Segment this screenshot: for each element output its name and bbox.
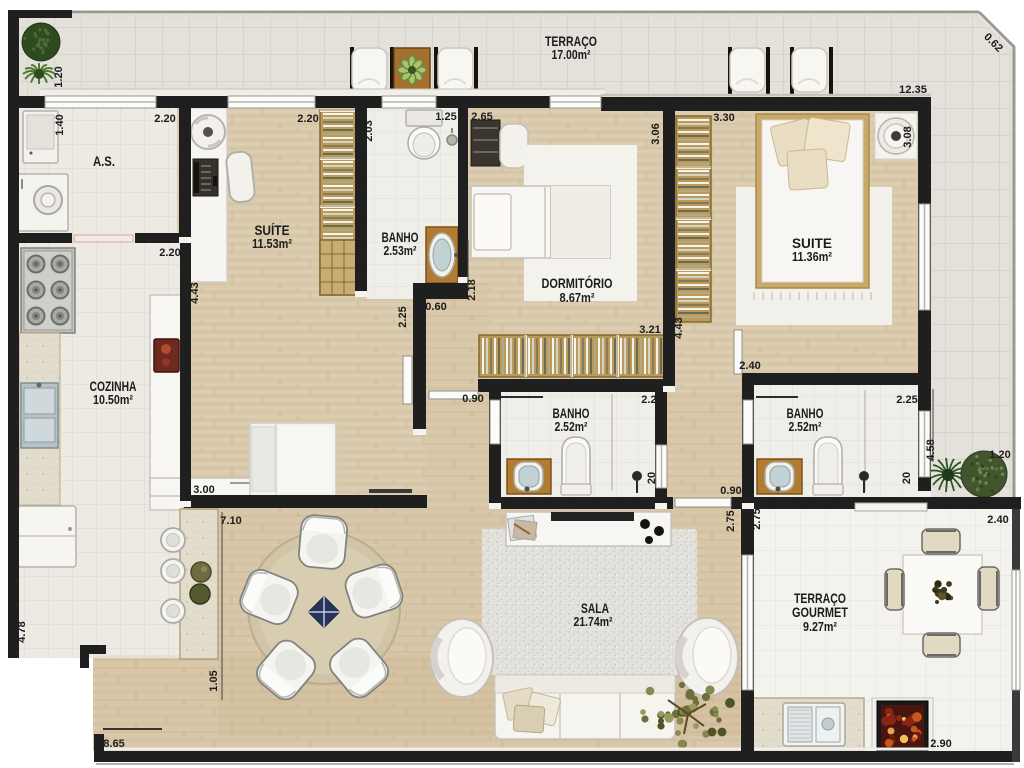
svg-text:12.35: 12.35 xyxy=(899,84,927,96)
svg-text:2.20: 2.20 xyxy=(159,247,180,259)
svg-text:1.40: 1.40 xyxy=(54,114,66,135)
svg-text:2.52m²: 2.52m² xyxy=(555,420,588,434)
svg-text:3.06: 3.06 xyxy=(650,123,662,144)
svg-text:TERRAÇO: TERRAÇO xyxy=(545,33,597,49)
svg-text:3.00: 3.00 xyxy=(193,484,214,496)
svg-text:GOURMET: GOURMET xyxy=(792,604,848,620)
svg-text:2.90: 2.90 xyxy=(930,738,951,750)
svg-text:8.67m²: 8.67m² xyxy=(560,291,595,305)
svg-text:2.75: 2.75 xyxy=(725,510,737,531)
svg-text:A.S.: A.S. xyxy=(93,153,115,169)
svg-text:2.20: 2.20 xyxy=(297,113,318,125)
svg-text:3.08: 3.08 xyxy=(902,126,914,147)
svg-text:4.43: 4.43 xyxy=(189,282,201,303)
svg-text:BANHO: BANHO xyxy=(553,405,590,421)
svg-text:2.40: 2.40 xyxy=(739,360,760,372)
svg-text:2.75: 2.75 xyxy=(751,508,763,529)
svg-text:4.78: 4.78 xyxy=(16,621,28,642)
svg-text:2.03: 2.03 xyxy=(363,120,375,141)
svg-text:COZINHA: COZINHA xyxy=(90,378,137,394)
svg-text:3.21: 3.21 xyxy=(639,324,660,336)
svg-text:BANHO: BANHO xyxy=(787,405,824,421)
svg-text:0.60: 0.60 xyxy=(425,301,446,313)
svg-text:3.30: 3.30 xyxy=(713,112,734,124)
svg-text:4.58: 4.58 xyxy=(925,439,937,460)
svg-text:2.25: 2.25 xyxy=(397,306,409,327)
svg-text:SUITE: SUITE xyxy=(792,235,832,251)
svg-text:1.05: 1.05 xyxy=(208,670,220,691)
svg-text:2.20: 2.20 xyxy=(641,394,662,406)
svg-text:10.50m²: 10.50m² xyxy=(93,393,133,407)
svg-text:21.74m²: 21.74m² xyxy=(574,615,613,629)
svg-text:1.20: 1.20 xyxy=(53,66,65,87)
svg-text:2.65: 2.65 xyxy=(471,111,492,123)
svg-text:7.10: 7.10 xyxy=(220,515,241,527)
svg-text:2.52m²: 2.52m² xyxy=(789,420,822,434)
svg-text:DORMITÓRIO: DORMITÓRIO xyxy=(542,274,613,291)
svg-text:2.18: 2.18 xyxy=(466,279,478,300)
svg-text:2.53m²: 2.53m² xyxy=(384,244,417,258)
svg-text:SUÍTE: SUÍTE xyxy=(255,222,290,238)
svg-text:4.43: 4.43 xyxy=(673,317,685,338)
svg-text:11.53m²: 11.53m² xyxy=(252,237,292,251)
svg-text:9.27m²: 9.27m² xyxy=(803,620,837,634)
svg-text:1.25: 1.25 xyxy=(435,111,456,123)
svg-text:20: 20 xyxy=(646,472,658,484)
svg-text:1.20: 1.20 xyxy=(989,449,1010,461)
svg-text:SALA: SALA xyxy=(581,600,609,616)
svg-text:BANHO: BANHO xyxy=(382,229,419,245)
svg-text:2.20: 2.20 xyxy=(154,113,175,125)
svg-text:0.90: 0.90 xyxy=(462,393,483,405)
svg-text:2.40: 2.40 xyxy=(987,514,1008,526)
svg-text:8.65: 8.65 xyxy=(103,738,124,750)
svg-text:2.25: 2.25 xyxy=(896,394,917,406)
svg-text:11.36m²: 11.36m² xyxy=(792,250,832,264)
svg-text:17.00m²: 17.00m² xyxy=(552,48,591,62)
svg-text:20: 20 xyxy=(901,472,913,484)
svg-text:0.90: 0.90 xyxy=(720,485,741,497)
